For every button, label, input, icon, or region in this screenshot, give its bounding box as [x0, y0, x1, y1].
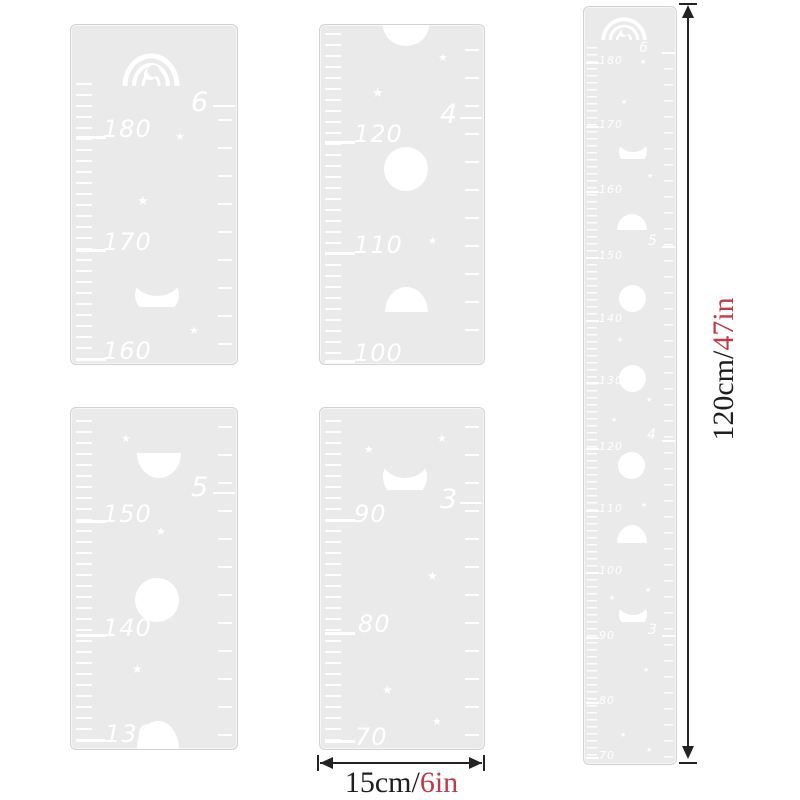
cm-label: 80 — [358, 610, 391, 638]
major-tick — [586, 702, 599, 704]
rainbow-icon — [598, 10, 650, 41]
cm-label: 130 — [599, 374, 623, 387]
ruler-segment-120-100: ★ ★ 4 120 110 ★ 100 — [319, 24, 485, 365]
major-tick — [325, 360, 355, 363]
star-icon: ★ — [617, 337, 623, 344]
star-icon: ★ — [428, 237, 437, 247]
crescent-moon-icon — [619, 137, 647, 159]
cm-label: 170 — [103, 228, 152, 256]
tick-marks-left — [587, 47, 597, 760]
foot-mark-label: 3 — [648, 622, 657, 638]
major-tick — [586, 382, 599, 384]
cm-label: 180 — [599, 54, 623, 67]
major-tick — [76, 249, 106, 252]
major-tick — [325, 519, 355, 522]
rainbow-icon — [117, 29, 185, 87]
major-tick — [586, 320, 599, 322]
star-icon: ★ — [647, 173, 653, 180]
tick-marks-right — [218, 426, 232, 741]
full-ruler: 6 180 ★ ★ 170 ★ 160 5 150 140 ★ 130 ★ ★ … — [583, 6, 677, 765]
major-tick — [586, 510, 599, 512]
crescent-moon-icon — [135, 275, 179, 307]
cm-label: 90 — [599, 629, 615, 642]
ruler-segment-90-70: ★ ★ 3 90 ★ 80 ★ ★ 70 — [319, 407, 485, 750]
major-tick — [586, 757, 599, 759]
foot-mark-line — [662, 246, 675, 248]
cm-label: 120 — [599, 440, 623, 453]
star-icon: ★ — [175, 131, 185, 142]
major-tick — [586, 191, 599, 193]
star-icon: ★ — [372, 87, 384, 100]
star-icon: ★ — [364, 444, 374, 455]
cm-label: 100 — [599, 564, 623, 577]
cm-label: 140 — [103, 614, 152, 642]
tick-marks-left — [76, 83, 92, 358]
cm-label: 110 — [599, 502, 623, 515]
star-icon: ★ — [427, 570, 438, 582]
foot-mark-line — [662, 635, 675, 637]
full-moon-icon — [384, 147, 428, 191]
cm-label: 160 — [103, 337, 152, 365]
height-dimension-label: 120cm/47in — [707, 249, 743, 489]
major-tick — [586, 572, 599, 574]
star-icon: ★ — [621, 99, 627, 106]
star-icon: ★ — [611, 417, 617, 424]
star-icon: ★ — [640, 59, 646, 66]
full-moon-icon — [618, 452, 645, 479]
star-icon: ★ — [137, 195, 149, 208]
foot-mark-label: 5 — [648, 233, 657, 249]
half-moon-icon — [385, 287, 428, 312]
tick-marks-right — [218, 119, 232, 356]
cm-label: 140 — [599, 312, 623, 325]
star-icon: ★ — [609, 595, 615, 602]
half-moon-icon — [137, 453, 181, 478]
major-tick — [76, 358, 106, 361]
height-dimension-arrowhead-down — [682, 746, 694, 759]
star-icon: ★ — [620, 732, 626, 739]
major-tick — [586, 448, 599, 450]
major-tick — [586, 62, 599, 64]
height-imperial-value: 47in — [707, 297, 740, 350]
cm-label: 100 — [354, 339, 403, 367]
cm-label: 120 — [354, 120, 403, 148]
foot-mark-label: 6 — [191, 87, 208, 118]
cm-label: 70 — [355, 723, 388, 751]
growth-chart-dimension-diagram: 6 180 ★ ★ 170 ★ 160 ★ ★ 4 120 110 ★ 100 … — [0, 0, 800, 800]
star-icon: ★ — [156, 526, 166, 537]
half-moon-icon — [383, 25, 429, 46]
major-tick — [586, 257, 599, 259]
star-icon: ★ — [646, 397, 652, 404]
major-tick — [76, 634, 106, 637]
star-icon: ★ — [643, 667, 649, 674]
width-dimension-cap-left — [317, 755, 319, 771]
tick-marks-left — [325, 420, 341, 743]
height-dimension-cap-bottom — [679, 762, 697, 764]
star-icon: ★ — [382, 684, 393, 696]
width-metric-value: 15cm/ — [345, 766, 420, 799]
foot-mark-label: 5 — [191, 472, 208, 503]
cm-label: 150 — [103, 500, 152, 528]
foot-mark-line — [460, 502, 482, 504]
cm-label: 180 — [103, 115, 152, 143]
foot-mark-label: 4 — [647, 427, 656, 443]
foot-mark-line — [213, 105, 235, 107]
star-icon: ★ — [189, 325, 199, 336]
foot-mark-line — [213, 492, 235, 494]
major-tick — [586, 126, 599, 128]
major-tick — [325, 252, 355, 255]
major-tick — [325, 632, 355, 635]
full-moon-icon — [619, 285, 646, 312]
tick-marks-right — [465, 49, 479, 356]
tick-marks-right — [664, 52, 673, 758]
tick-marks-left — [76, 420, 92, 743]
foot-mark-label: 4 — [440, 99, 457, 130]
star-icon: ★ — [641, 502, 647, 509]
major-tick — [76, 739, 106, 742]
star-icon: ★ — [437, 433, 447, 444]
half-moon-icon — [617, 214, 647, 230]
cm-label: 110 — [354, 231, 403, 259]
full-moon-icon — [619, 365, 646, 392]
foot-mark-line — [460, 117, 482, 119]
cm-label: 90 — [354, 500, 387, 528]
foot-mark-line — [662, 52, 675, 54]
star-icon: ★ — [438, 52, 448, 63]
foot-mark-label: 3 — [440, 484, 457, 515]
star-icon: ★ — [646, 747, 652, 754]
width-dimension-line — [320, 762, 482, 764]
ruler-segment-150-130: ★ 5 150 ★ 140 ★ 130 — [70, 407, 238, 750]
major-tick — [586, 637, 599, 639]
width-dimension-cap-right — [483, 755, 485, 771]
height-dimension-line — [687, 14, 689, 750]
width-dimension-label: 15cm/6in — [320, 766, 483, 800]
major-tick — [76, 520, 106, 523]
half-moon-icon — [617, 525, 647, 543]
cm-label: 80 — [599, 694, 615, 707]
cm-label: 160 — [599, 183, 623, 196]
foot-mark-label: 6 — [639, 40, 648, 56]
width-imperial-value: 6in — [420, 766, 458, 799]
crescent-moon-icon — [383, 454, 427, 490]
major-tick — [76, 136, 106, 139]
star-icon: ★ — [645, 587, 651, 594]
major-tick — [325, 740, 355, 743]
foot-mark-line — [662, 440, 675, 442]
major-tick — [325, 141, 355, 144]
cm-label: 70 — [599, 749, 615, 762]
star-icon: ★ — [121, 433, 131, 444]
ruler-segment-180-160: 6 180 ★ ★ 170 ★ 160 — [70, 24, 238, 365]
cm-label: 170 — [599, 118, 623, 131]
cm-label: 130 — [105, 720, 154, 748]
star-icon: ★ — [132, 663, 143, 675]
height-metric-value: 120cm/ — [707, 351, 740, 441]
cm-label: 150 — [599, 249, 623, 262]
crescent-moon-icon — [619, 600, 647, 622]
tick-marks-right — [465, 426, 479, 741]
tick-marks-left — [325, 33, 341, 358]
star-icon: ★ — [432, 716, 442, 727]
